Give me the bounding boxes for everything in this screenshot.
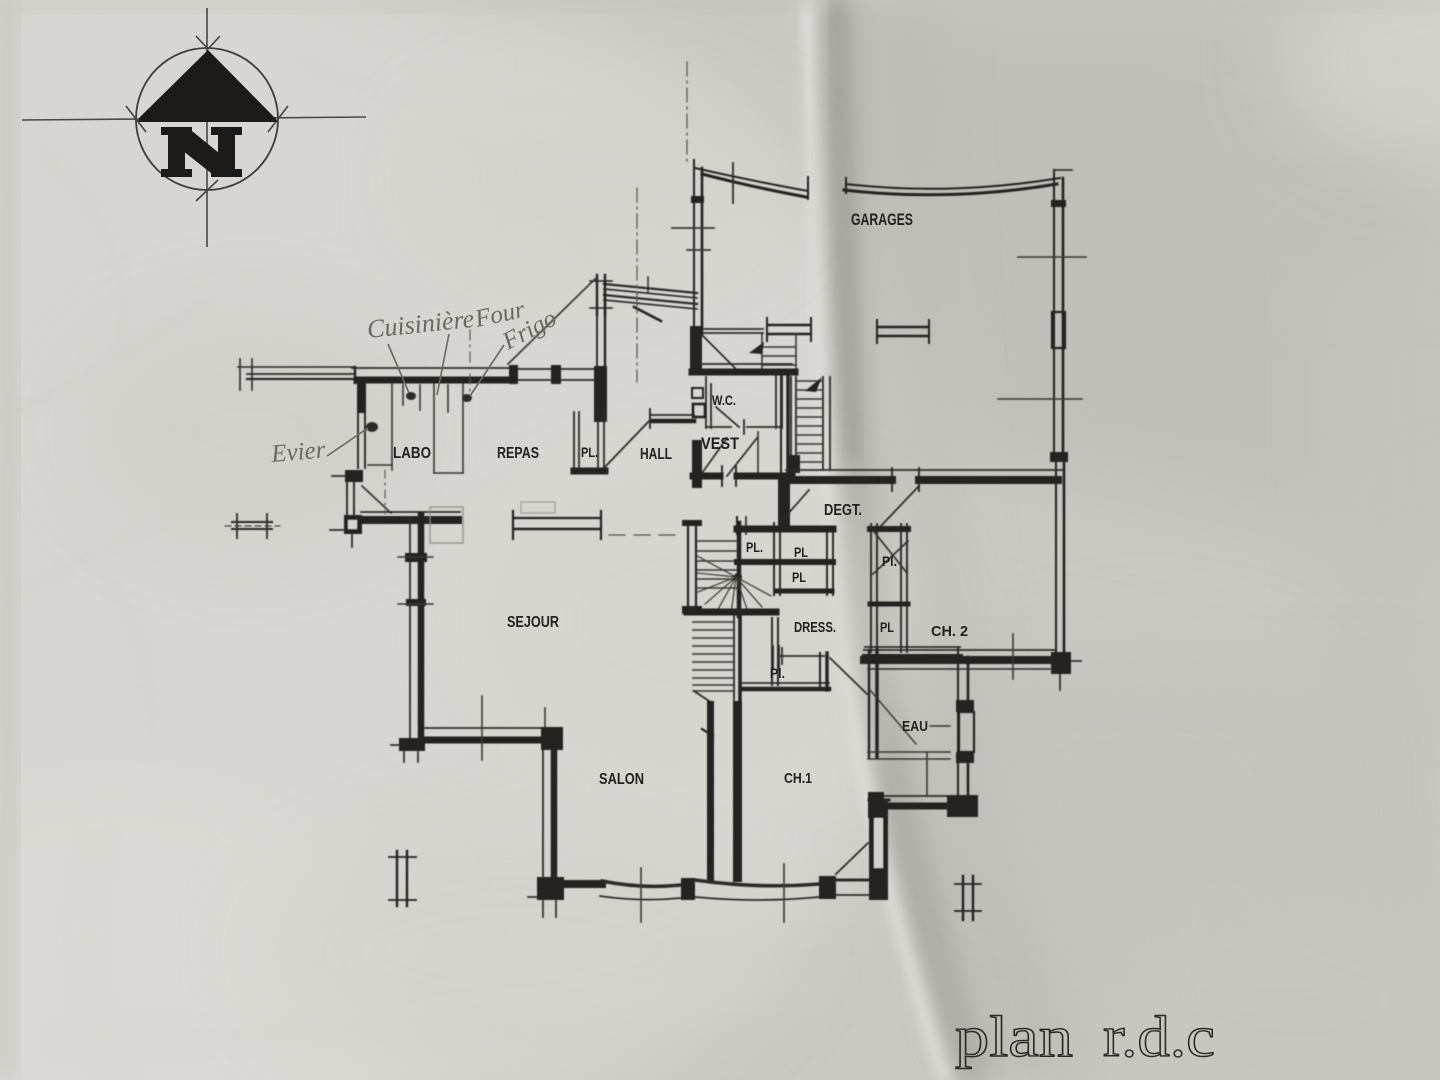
svg-text:r.d.c: r.d.c	[1103, 1004, 1215, 1069]
svg-text:Pl.: Pl.	[770, 666, 785, 681]
svg-text:Pl.: Pl.	[882, 554, 897, 569]
svg-text:SEJOUR: SEJOUR	[507, 614, 559, 631]
svg-text:PL.: PL.	[746, 540, 763, 555]
svg-text:HALL: HALL	[640, 446, 672, 463]
svg-text:W.C.: W.C.	[712, 393, 736, 408]
svg-text:PL.: PL.	[581, 444, 598, 460]
svg-text:Evier: Evier	[269, 436, 327, 468]
svg-text:SALON: SALON	[599, 771, 644, 788]
svg-text:PL: PL	[880, 620, 894, 635]
svg-text:PL: PL	[792, 570, 806, 585]
svg-text:plan: plan	[955, 1004, 1073, 1069]
svg-text:VEST: VEST	[701, 434, 740, 453]
svg-text:CH. 2: CH. 2	[931, 623, 968, 640]
svg-text:EAU: EAU	[902, 718, 928, 735]
svg-text:DEGT.: DEGT.	[824, 502, 862, 519]
svg-text:LABO: LABO	[393, 445, 431, 462]
svg-text:GARAGES: GARAGES	[851, 210, 913, 229]
svg-text:CH.1: CH.1	[784, 770, 812, 787]
svg-text:PL: PL	[794, 545, 808, 560]
svg-text:REPAS: REPAS	[497, 445, 539, 462]
svg-text:DRESS.: DRESS.	[794, 619, 836, 636]
